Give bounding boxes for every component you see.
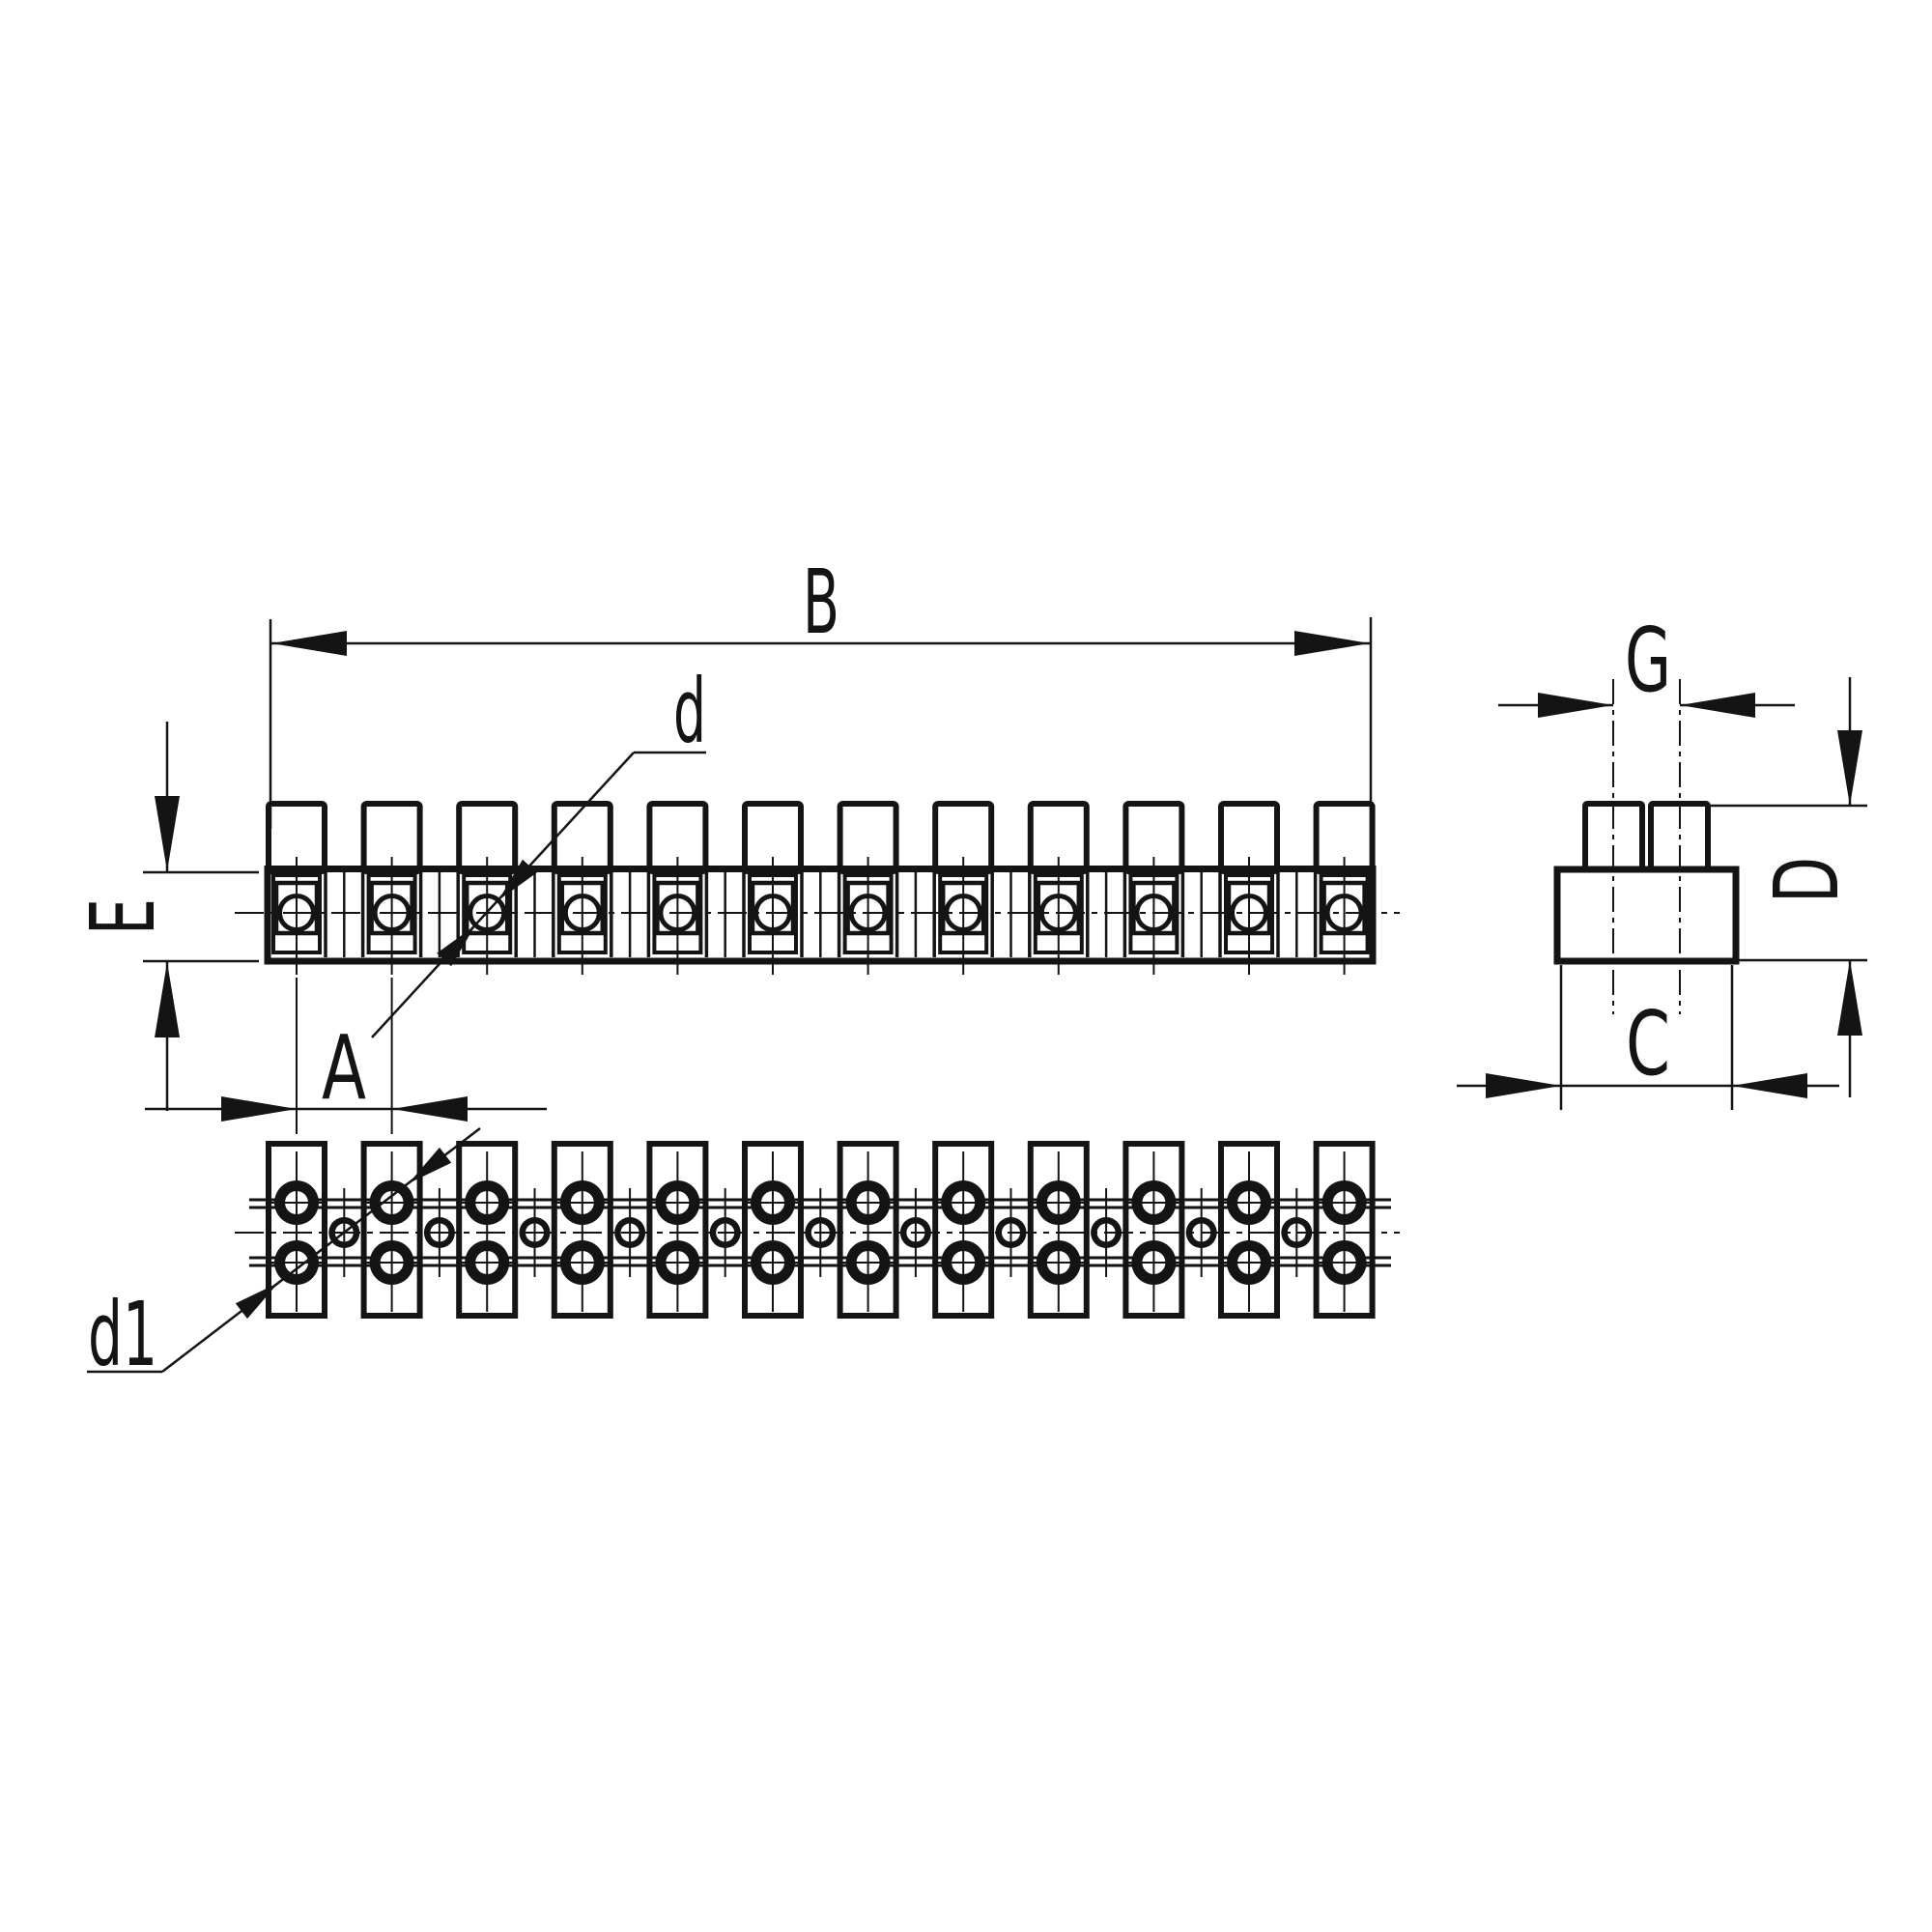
- bottom-terminal: [456, 1144, 518, 1316]
- front-terminal: [1220, 857, 1296, 975]
- arrowhead-left-icon: [271, 631, 347, 656]
- front-view-tabs: [269, 804, 1373, 871]
- arrowhead-right-icon: [1486, 1073, 1561, 1098]
- front-terminal: [1124, 857, 1201, 975]
- bottom-terminal: [1218, 1144, 1280, 1316]
- arrowhead-down-icon: [155, 796, 180, 871]
- bottom-terminal: [742, 1144, 804, 1316]
- arrowhead-left-icon: [1732, 1073, 1807, 1098]
- dimension-label-B: B: [803, 551, 839, 654]
- arrowhead-right-icon: [1538, 693, 1613, 718]
- front-view: [235, 804, 1400, 975]
- arrowhead-right-icon: [221, 1096, 297, 1122]
- dimension-C: C: [1457, 965, 1839, 1110]
- front-terminal: [648, 857, 724, 975]
- side-view: [1557, 679, 1736, 1014]
- side-view-body: [1557, 869, 1736, 961]
- side-view-tabs: [1585, 804, 1708, 872]
- dimension-label-d: d: [673, 660, 706, 763]
- bottom-terminal: [838, 1144, 899, 1316]
- bottom-terminal: [361, 1144, 423, 1316]
- front-terminal: [934, 857, 1010, 975]
- bottom-terminal: [266, 1144, 327, 1316]
- dimension-G: G: [1498, 609, 1795, 718]
- terminal-strip-drawing: B E A d d1 G: [0, 0, 1932, 1932]
- arrowhead-left-icon: [1680, 693, 1755, 718]
- front-view-terminals: [268, 857, 1374, 975]
- dimension-label-D: D: [1755, 857, 1859, 903]
- bottom-terminal: [552, 1144, 613, 1316]
- front-terminal: [268, 857, 344, 975]
- arrowhead-icon: [409, 1148, 451, 1183]
- dimension-label-G: G: [1625, 609, 1671, 712]
- bottom-terminal: [646, 1144, 708, 1316]
- dimension-A: A: [145, 978, 547, 1134]
- technical-drawing-page: B E A d d1 G: [0, 0, 1932, 1932]
- arrowhead-up-icon: [1837, 960, 1862, 1036]
- bottom-terminal: [1122, 1144, 1184, 1316]
- front-terminal: [839, 857, 916, 975]
- dimension-label-A: A: [322, 1016, 366, 1120]
- dimension-label-d1: d1: [88, 1283, 157, 1386]
- bottom-terminal: [1314, 1144, 1376, 1316]
- front-terminal: [554, 857, 630, 975]
- dimension-label-C: C: [1626, 992, 1670, 1095]
- arrowhead-up-icon: [155, 962, 180, 1037]
- bottom-terminal: [932, 1144, 994, 1316]
- bottom-terminal: [1028, 1144, 1090, 1316]
- arrowhead-down-icon: [1837, 730, 1862, 806]
- arrowhead-right-icon: [1294, 631, 1370, 656]
- front-terminal: [744, 857, 820, 975]
- front-terminal: [1316, 857, 1374, 975]
- dimension-label-E: E: [71, 898, 175, 935]
- bottom-view: [235, 1144, 1400, 1316]
- front-terminal: [363, 857, 440, 975]
- front-terminal: [1030, 857, 1106, 975]
- dimension-E: E: [71, 722, 259, 1111]
- dimension-B: B: [270, 551, 1371, 829]
- arrowhead-left-icon: [392, 1096, 468, 1122]
